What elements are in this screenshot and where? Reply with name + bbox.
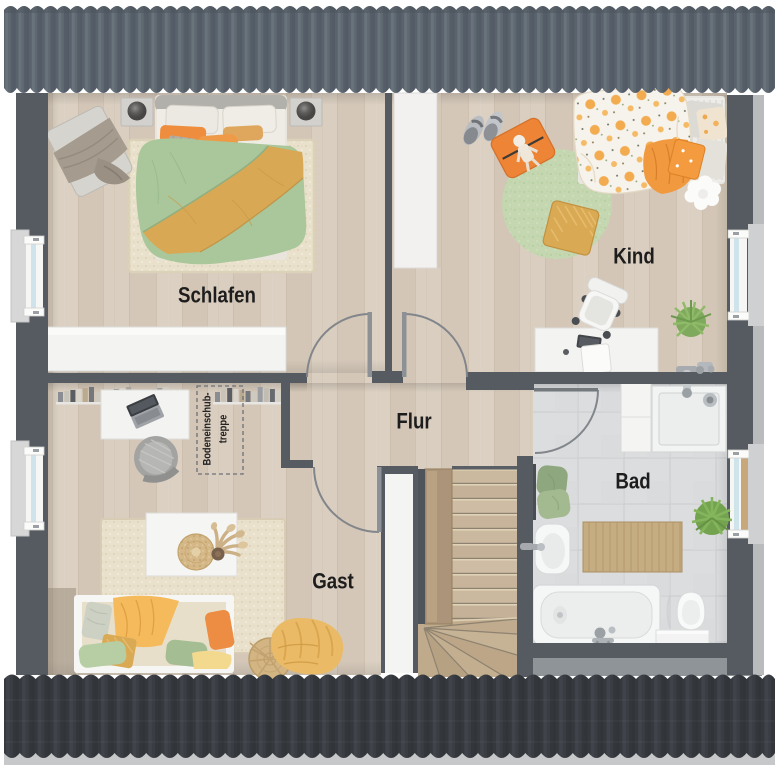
svg-text:Gast: Gast [312,570,354,594]
svg-text:Flur: Flur [396,410,431,434]
svg-text:Schlafen: Schlafen [178,284,256,308]
svg-text:treppe: treppe [218,414,230,443]
svg-text:Kind: Kind [613,245,655,269]
svg-text:Bad: Bad [615,470,650,494]
svg-text:Bodeneinschub-: Bodeneinschub- [202,392,214,465]
